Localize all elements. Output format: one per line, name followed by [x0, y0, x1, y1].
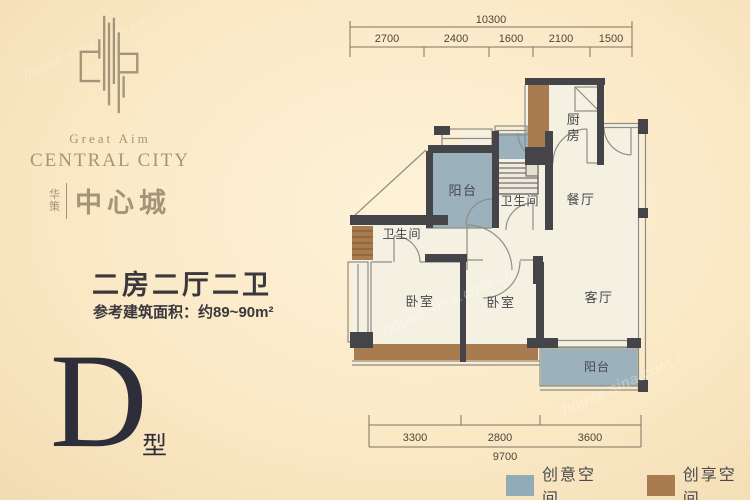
- bottom-brown-strip: [354, 344, 538, 360]
- legend: 创意空间 创享空间: [506, 461, 750, 500]
- dimension-top: 10300 2700 2400 1600 2100 1500: [350, 14, 632, 57]
- logo-right-bracket: [120, 54, 138, 73]
- room-label-living: 客厅: [584, 290, 613, 305]
- room-label-balcony-top: 阳台: [448, 183, 477, 198]
- unit-type-suffix: 型: [142, 426, 168, 462]
- dim-top-seg4: 2100: [549, 33, 573, 45]
- brand-cn-prefix-top: 华: [49, 189, 60, 201]
- legend-label-enjoy: 创享空间: [683, 461, 750, 500]
- logo-left-bracket: [81, 52, 100, 81]
- room-label-dining: 餐厅: [566, 192, 595, 207]
- dim-top-seg2: 2400: [444, 33, 468, 45]
- staircase: [498, 163, 538, 194]
- brand-name-cn: 中心城: [75, 181, 171, 220]
- unit-type-letter: D: [50, 334, 148, 469]
- brand-block: Great Aim CENTRAL CITY 华 策 中心城: [18, 8, 202, 220]
- area-note: 参考建筑面积：约89~90m²: [93, 301, 273, 322]
- legend-swatch-creative: [506, 475, 534, 496]
- floorplan: 厨 房 餐厅 客厅 阳台 阳台 卫生间 卫生间 卧室 卧室 10300: [330, 0, 680, 500]
- room-label-bedroom-mid: 卧室: [486, 295, 515, 310]
- dim-bottom-seg1: 3300: [403, 432, 427, 444]
- dimension-bottom: 3300 2800 3600 9700: [369, 415, 641, 463]
- legend-label-creative: 创意空间: [542, 461, 609, 500]
- brand-cn-prefix: 华 策: [49, 189, 60, 213]
- brand-tagline: Great Aim: [18, 131, 202, 147]
- room-label-bath-lower: 卫生间: [382, 227, 421, 241]
- dim-top-total: 10300: [476, 14, 507, 26]
- legend-swatch-enjoy: [647, 475, 675, 496]
- brand-logo-icon: [70, 8, 150, 120]
- room-label-kitchen-1: 厨: [567, 112, 582, 127]
- dim-top-seg1: 2700: [375, 33, 399, 45]
- room-label-balcony-bottom: 阳台: [584, 359, 610, 374]
- dim-bottom-seg2: 2800: [488, 432, 512, 444]
- dim-top-seg3: 1600: [499, 33, 523, 45]
- room-label-kitchen-2: 房: [567, 128, 582, 143]
- brand-name-en: CENTRAL CITY: [18, 150, 202, 172]
- room-label-bath-upper: 卫生间: [500, 194, 539, 208]
- dim-bottom-seg3: 3600: [578, 432, 602, 444]
- brand-divider: [66, 183, 67, 219]
- dim-top-seg5: 1500: [599, 33, 623, 45]
- layout-title: 二房二厅二卫: [92, 263, 272, 302]
- brand-name-cn-row: 华 策 中心城: [18, 181, 202, 220]
- page: house.sina.com.cn Great Aim CENTRAL CITY…: [0, 0, 750, 500]
- brand-cn-prefix-bottom: 策: [49, 201, 60, 213]
